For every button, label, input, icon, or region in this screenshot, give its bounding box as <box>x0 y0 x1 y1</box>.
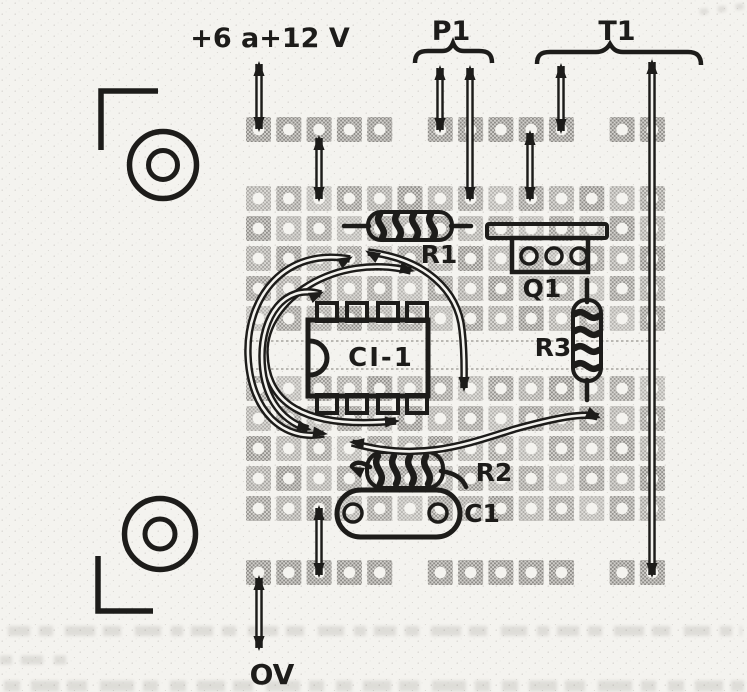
pad-hole <box>404 283 416 295</box>
pad-hole <box>253 253 265 265</box>
pad-hole <box>374 567 386 579</box>
pad-hole <box>495 567 507 579</box>
pad-hole <box>525 443 537 455</box>
pad-hole <box>495 283 507 295</box>
pad-hole <box>616 283 628 295</box>
pad-hole <box>616 567 628 579</box>
t1-label: T1 <box>598 16 635 47</box>
pad-hole <box>344 567 356 579</box>
pad-hole <box>313 383 325 395</box>
pad-hole <box>404 193 416 205</box>
pad-hole <box>344 124 356 136</box>
pad-hole <box>283 313 295 325</box>
pad-hole <box>495 124 507 136</box>
ov-label: OV <box>250 658 295 691</box>
pad-hole <box>435 313 447 325</box>
pad-hole <box>465 473 477 485</box>
pad-hole <box>495 443 507 455</box>
perfboard-assembly-diagram: +6 a+12 V P1 T1 OV R1 Q1 R3 CI-1 R2 C1 <box>0 0 747 692</box>
pad-hole <box>616 383 628 395</box>
pad-hole <box>344 383 356 395</box>
pad-hole <box>283 503 295 515</box>
r3-label: R3 <box>535 333 572 362</box>
q1-label: Q1 <box>523 274 562 303</box>
pad-hole <box>283 193 295 205</box>
pad-hole <box>586 193 598 205</box>
pad-hole <box>253 223 265 235</box>
pad-hole <box>374 503 386 515</box>
pad-hole <box>616 503 628 515</box>
pad-hole <box>404 503 416 515</box>
pad-hole <box>465 567 477 579</box>
pad-hole <box>465 283 477 295</box>
pad-hole <box>556 193 568 205</box>
pad-hole <box>435 193 447 205</box>
pad-hole <box>556 503 568 515</box>
pad-hole <box>344 473 356 485</box>
pad-hole <box>253 193 265 205</box>
pad-hole <box>283 567 295 579</box>
pad-hole <box>495 253 507 265</box>
pad-hole <box>283 223 295 235</box>
supply-voltage-label: +6 a+12 V <box>190 23 350 54</box>
r1-label: R1 <box>421 240 458 269</box>
pad-hole <box>616 124 628 136</box>
pad-hole <box>616 443 628 455</box>
pad-hole <box>253 503 265 515</box>
pad-hole <box>586 443 598 455</box>
pad-hole <box>556 383 568 395</box>
pad-hole <box>616 253 628 265</box>
c1-label: C1 <box>464 499 500 528</box>
pad-hole <box>616 193 628 205</box>
pad-hole <box>616 413 628 425</box>
pad-hole <box>556 313 568 325</box>
pad-hole <box>374 383 386 395</box>
pad-hole <box>253 443 265 455</box>
pad-hole <box>283 443 295 455</box>
pad-hole <box>465 313 477 325</box>
pad-hole <box>313 473 325 485</box>
pad-hole <box>616 313 628 325</box>
pad-hole <box>435 413 447 425</box>
pad-hole <box>525 503 537 515</box>
scanned-magazine-figure: +6 a+12 V P1 T1 OV R1 Q1 R3 CI-1 R2 C1 <box>0 0 747 692</box>
pad-hole <box>435 567 447 579</box>
pad-hole <box>374 193 386 205</box>
pad-hole <box>313 223 325 235</box>
pad-hole <box>253 413 265 425</box>
pad-hole <box>465 253 477 265</box>
pad-hole <box>283 383 295 395</box>
pad-hole <box>374 283 386 295</box>
pad-hole <box>586 503 598 515</box>
p1-label: P1 <box>432 16 471 47</box>
pad-hole <box>495 413 507 425</box>
pad-hole <box>525 473 537 485</box>
pad-hole <box>465 413 477 425</box>
pad-hole <box>495 313 507 325</box>
r2-label: R2 <box>476 458 513 487</box>
pad-hole <box>374 124 386 136</box>
pad-hole <box>283 473 295 485</box>
pad-hole <box>313 443 325 455</box>
pad-hole <box>556 443 568 455</box>
pad-hole <box>253 473 265 485</box>
pad-hole <box>556 567 568 579</box>
pad-hole <box>495 383 507 395</box>
pad-hole <box>404 383 416 395</box>
pad-hole <box>344 193 356 205</box>
pad-hole <box>344 283 356 295</box>
pad-hole <box>586 473 598 485</box>
pad-hole <box>616 473 628 485</box>
pad-hole <box>556 473 568 485</box>
pad-hole <box>313 124 325 136</box>
ci1-label: CI-1 <box>348 343 414 373</box>
pad-hole <box>495 193 507 205</box>
pad-hole <box>525 383 537 395</box>
pad-hole <box>616 223 628 235</box>
pad-hole <box>525 313 537 325</box>
pad-hole <box>283 124 295 136</box>
pad-hole <box>525 567 537 579</box>
pad-hole <box>435 383 447 395</box>
